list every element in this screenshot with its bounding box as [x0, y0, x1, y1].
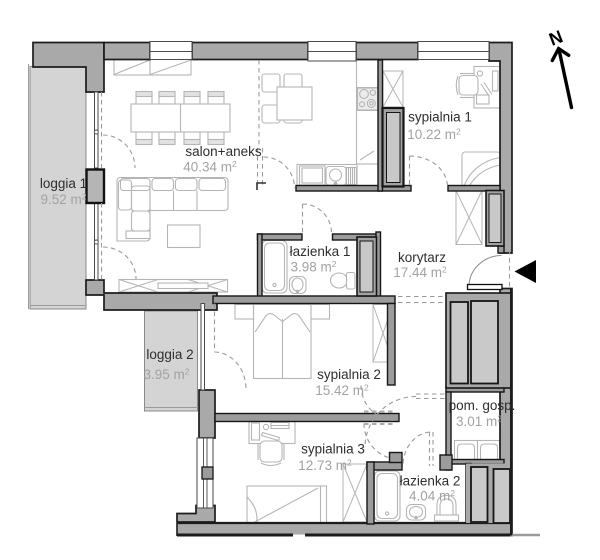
svg-text:12.73 m2: 12.73 m2	[298, 458, 352, 474]
svg-text:salon+aneks: salon+aneks	[185, 144, 261, 159]
svg-text:korytarz: korytarz	[398, 250, 446, 265]
svg-text:łazienka 2: łazienka 2	[400, 474, 461, 489]
svg-text:3.98 m2: 3.98 m2	[290, 259, 336, 275]
svg-text:3.01 m2: 3.01 m2	[456, 414, 502, 430]
svg-text:40.34 m2: 40.34 m2	[183, 159, 237, 175]
svg-text:loggia 2: loggia 2	[146, 347, 193, 362]
svg-text:pom. gosp.: pom. gosp.	[449, 398, 516, 413]
svg-text:sypialnia 2: sypialnia 2	[317, 367, 381, 382]
svg-text:loggia 1: loggia 1	[40, 176, 87, 191]
svg-text:17.44 m2: 17.44 m2	[393, 265, 447, 281]
svg-text:4.04 m2: 4.04 m2	[409, 488, 455, 504]
svg-text:sypialnia 1: sypialnia 1	[408, 110, 472, 125]
svg-text:9.52 m2: 9.52 m2	[40, 192, 86, 208]
svg-text:15.42 m2: 15.42 m2	[315, 383, 369, 399]
svg-text:łazienka 1: łazienka 1	[290, 244, 351, 259]
svg-text:sypialnia 3: sypialnia 3	[301, 442, 365, 457]
svg-text:10.22 m2: 10.22 m2	[407, 127, 461, 143]
svg-text:3.95 m2: 3.95 m2	[143, 367, 189, 383]
